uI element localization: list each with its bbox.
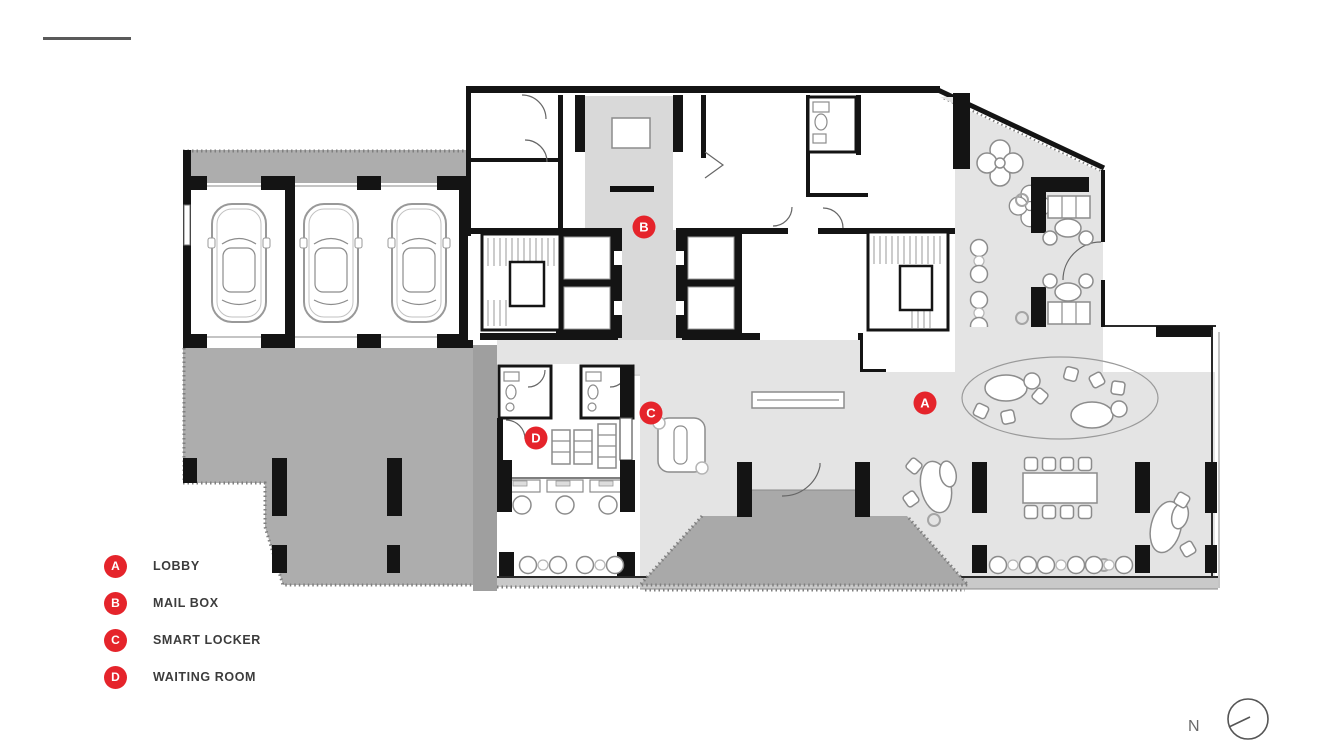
legend-item-lobby: A LOBBY [104, 551, 261, 581]
mail-table [610, 186, 654, 192]
legend-badge-c: C [104, 629, 127, 652]
legend: A LOBBY B MAIL BOX C SMART LOCKER D WAIT… [104, 551, 261, 699]
legend-label-mail-box: MAIL BOX [153, 596, 219, 610]
legend-badge-a: A [104, 555, 127, 578]
svg-text:B: B [639, 220, 648, 235]
meeting-table [1023, 458, 1097, 519]
legend-item-waiting-room: D WAITING ROOM [104, 662, 261, 692]
legend-item-smart-locker: C SMART LOCKER [104, 625, 261, 655]
mail-hall-floor [585, 96, 673, 230]
marker-d: D [525, 427, 548, 450]
svg-text:A: A [920, 396, 930, 411]
core-toilet-room [808, 97, 856, 152]
garage-area [183, 150, 497, 591]
desk-stations [500, 478, 630, 514]
smart-locker [653, 417, 708, 474]
legend-label-smart-locker: SMART LOCKER [153, 633, 261, 647]
toilet-room-1 [499, 366, 551, 418]
legend-label-lobby: LOBBY [153, 559, 200, 573]
north-compass-needle [1229, 717, 1250, 727]
marker-a: A [914, 392, 937, 415]
elevator-bank-right [676, 228, 742, 338]
elevator-bank-left [556, 228, 622, 338]
north-indicator: N [1188, 699, 1268, 739]
entrance-vestibule [752, 490, 855, 517]
car-3 [388, 204, 450, 322]
mail-counter [612, 118, 650, 148]
legend-badge-d: D [104, 666, 127, 689]
svg-text:D: D [531, 431, 540, 446]
legend-item-mail-box: B MAIL BOX [104, 588, 261, 618]
marker-b: B [633, 216, 656, 239]
north-label: N [1188, 718, 1200, 735]
north-compass-circle [1228, 699, 1268, 739]
upper-lounge [940, 93, 1216, 343]
stairwell-left [482, 234, 560, 330]
legend-badge-b: B [104, 592, 127, 615]
stairwell-right [868, 232, 948, 330]
marker-c: C [640, 402, 663, 425]
svg-text:C: C [646, 406, 656, 421]
car-1 [208, 204, 270, 322]
legend-label-waiting-room: WAITING ROOM [153, 670, 256, 684]
car-2 [300, 204, 362, 322]
